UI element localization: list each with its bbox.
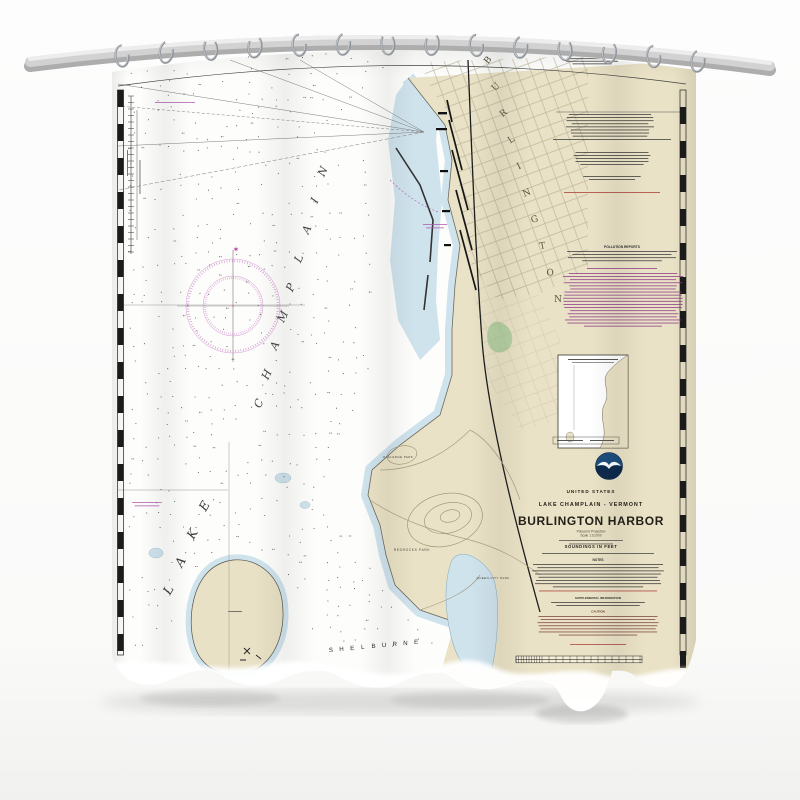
fabric-folds <box>96 40 706 745</box>
svg-text:H: H <box>339 646 344 653</box>
magenta-star-icon: ✶ <box>233 245 240 254</box>
shower-curtain: ✶ LAKE CHAMPLAIN BURLINGTON SHELBURNE OA… <box>96 20 716 760</box>
svg-text:E: E <box>350 645 354 652</box>
svg-text:S: S <box>329 647 334 654</box>
product-scene: ✶ LAKE CHAMPLAIN BURLINGTON SHELBURNE OA… <box>0 0 800 800</box>
svg-text:N: N <box>554 295 562 305</box>
svg-text:O: O <box>546 268 554 279</box>
shower-curtain-product-photo: ✶ LAKE CHAMPLAIN BURLINGTON SHELBURNE OA… <box>0 0 800 800</box>
